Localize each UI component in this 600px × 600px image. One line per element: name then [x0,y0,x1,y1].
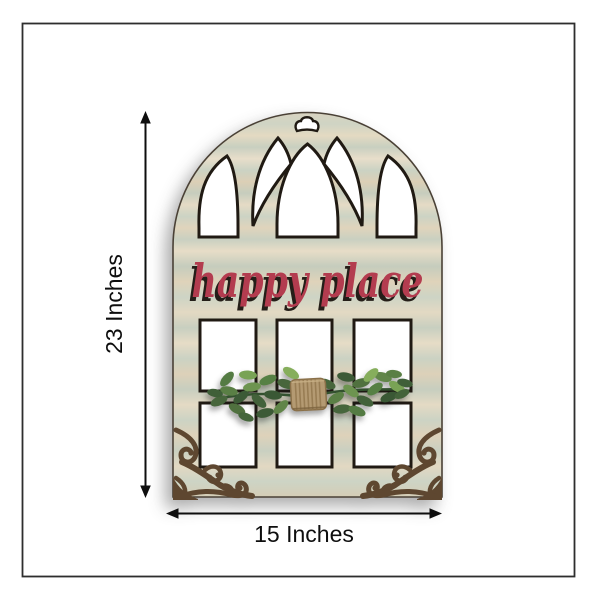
height-dimension: 23 Inches [101,111,151,498]
width-dimension-label: 15 Inches [254,521,354,547]
diagram-canvas: happy place happy place [0,0,600,600]
height-dimension-label: 23 Inches [101,254,127,354]
pane-bottom-center [277,403,332,467]
arrow-down-icon [140,486,151,499]
twine-wrap [290,378,327,411]
arrow-up-icon [140,111,151,124]
width-dimension: 15 Inches [166,508,442,547]
sign-text: happy place [192,254,424,308]
product-dimension-diagram: happy place happy place [0,0,600,600]
arrow-left-icon [166,508,179,519]
wall-decor-product: happy place happy place [173,113,442,501]
arrow-right-icon [430,508,443,519]
pane-bottom-left [200,403,256,467]
